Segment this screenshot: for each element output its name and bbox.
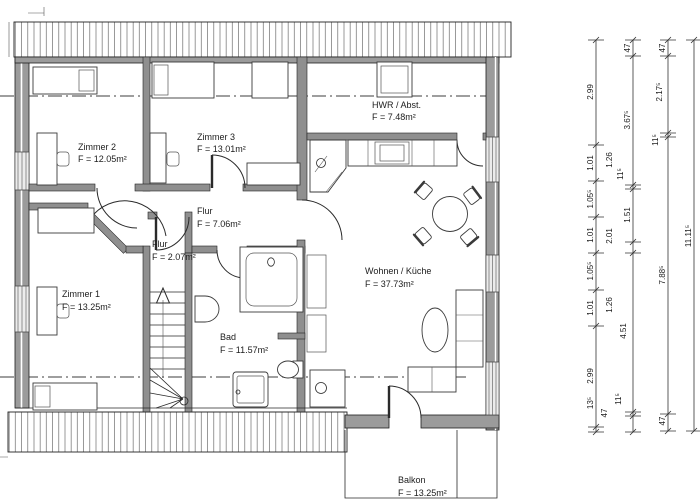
room-label-zimmer3-area: F = 13.01m² bbox=[197, 144, 246, 154]
dim-label: 11⁵ bbox=[616, 168, 625, 180]
dim-label: 3.67⁵ bbox=[623, 111, 632, 130]
dim-label: 2.17⁵ bbox=[655, 83, 664, 102]
cabinet-1 bbox=[307, 255, 326, 308]
dim-label: 1.01 bbox=[586, 155, 595, 171]
roof-hatch-bottom bbox=[8, 412, 347, 452]
room-label-balkon-area: F = 13.25m² bbox=[398, 488, 447, 498]
bed-zimmer3 bbox=[152, 62, 214, 98]
dim-label: 1.01 bbox=[586, 227, 595, 243]
dim-label: 47 bbox=[658, 416, 667, 425]
dim-label: 2.99 bbox=[586, 84, 595, 100]
dim-label: 7.88⁵ bbox=[658, 266, 667, 285]
room-label-hwr-area: F = 7.48m² bbox=[372, 112, 416, 122]
dining-set bbox=[414, 182, 481, 246]
room-label-bad-area: F = 11.57m² bbox=[220, 345, 268, 355]
dim-label: 47 bbox=[623, 43, 632, 52]
desk-zimmer3 bbox=[150, 133, 179, 183]
door-kitchen-arc bbox=[302, 200, 342, 240]
kitchen-corner-unit bbox=[310, 140, 346, 192]
room-label-zimmer3-name: Zimmer 3 bbox=[197, 132, 235, 142]
floor-plan-page: Zimmer 2 F = 12.05m² Zimmer 3 F = 13.01m… bbox=[0, 0, 700, 500]
dimension-chain-4: 11.11⁵ bbox=[684, 37, 700, 434]
bed-zimmer1 bbox=[33, 383, 97, 410]
dim-label: 4.51 bbox=[619, 323, 628, 339]
room-label-zimmer1-name: Zimmer 1 bbox=[62, 289, 100, 299]
staircase bbox=[150, 288, 188, 408]
bathroom-fixtures bbox=[195, 247, 303, 407]
kitchen-counter bbox=[348, 140, 457, 166]
window-west-upper bbox=[15, 152, 29, 190]
dining-table bbox=[433, 197, 468, 232]
stove bbox=[310, 370, 345, 407]
desk-zimmer2 bbox=[37, 133, 69, 185]
room-label-hwr-name: HWR / Abst. bbox=[372, 100, 421, 110]
living-room-furniture bbox=[307, 255, 483, 407]
room-label-flur2-name: Flur bbox=[152, 239, 168, 249]
room-label-flur-name: Flur bbox=[197, 206, 213, 216]
dim-label: 1.26 bbox=[605, 297, 614, 313]
window-east-2 bbox=[486, 255, 499, 292]
dim-label: 11.11⁵ bbox=[684, 225, 693, 247]
door-hwr-arc bbox=[457, 140, 483, 166]
dim-label: 47 bbox=[658, 43, 667, 52]
wardrobe-zimmer3 bbox=[252, 62, 288, 98]
dim-label: 11⁵ bbox=[614, 393, 623, 405]
dresser-zimmer1 bbox=[38, 208, 94, 233]
door-zimmer3-arc bbox=[212, 155, 245, 188]
dim-label: 13⁵ bbox=[586, 397, 595, 409]
dim-label: 1.05⁵ bbox=[586, 190, 595, 209]
room-label-bad-name: Bad bbox=[220, 332, 236, 342]
roof-hatch-top bbox=[14, 22, 511, 57]
dimension-chain-2: 47 3.67⁵ 1.26 11⁵ 1.51 2.01 1.26 4.51 11… bbox=[600, 37, 641, 435]
cabinet-2 bbox=[307, 315, 326, 352]
wall-south-right bbox=[421, 415, 499, 428]
wall-south-left bbox=[345, 415, 389, 428]
shower bbox=[233, 372, 268, 407]
dim-label: 1.51 bbox=[623, 207, 632, 223]
room-label-zimmer1-area: F = 13.25m² bbox=[62, 302, 111, 312]
room-label-flur-area: F = 7.06m² bbox=[197, 219, 241, 229]
dim-label: 11⁵ bbox=[651, 134, 660, 146]
dim-label: 1.05⁵ bbox=[586, 262, 595, 281]
sideboard-zimmer3 bbox=[247, 163, 300, 185]
dimension-chain-3: 47 2.17⁵ 11⁵ 7.88⁵ 47 bbox=[651, 37, 676, 434]
room-label-zimmer2-name: Zimmer 2 bbox=[78, 142, 116, 152]
window-east-1 bbox=[486, 137, 499, 182]
room-label-balkon-name: Balkon bbox=[398, 475, 426, 485]
bed-zimmer2 bbox=[33, 67, 97, 94]
dim-label: 47 bbox=[600, 408, 609, 417]
room-label-zimmer2-area: F = 12.05m² bbox=[78, 154, 127, 164]
window-west-lower bbox=[15, 286, 29, 332]
floor-plan-drawing: Zimmer 2 F = 12.05m² Zimmer 3 F = 13.01m… bbox=[0, 0, 700, 500]
room-label-flur2-area: F = 2.07m² bbox=[152, 252, 196, 262]
dim-label: 1.01 bbox=[586, 300, 595, 316]
toilet bbox=[278, 361, 304, 378]
room-label-wohnen-area: F = 37.73m² bbox=[365, 279, 414, 289]
washing-machine bbox=[377, 62, 412, 97]
room-label-wohnen-name: Wohnen / Küche bbox=[365, 266, 431, 276]
dim-label: 2.99 bbox=[586, 368, 595, 384]
dimension-chains: 2.99 1.01 1.05⁵ 1.01 1.05⁵ 1.01 2.99 13⁵… bbox=[586, 37, 700, 435]
dim-label: 1.26 bbox=[605, 152, 614, 168]
window-east-3 bbox=[486, 362, 499, 415]
door-zimmer2-arc bbox=[97, 188, 137, 228]
coffee-table bbox=[422, 308, 448, 352]
dimension-chain-1: 2.99 1.01 1.05⁵ 1.01 1.05⁵ 1.01 2.99 13⁵ bbox=[586, 37, 604, 435]
dim-label: 2.01 bbox=[605, 228, 614, 244]
washbasin bbox=[195, 296, 219, 322]
